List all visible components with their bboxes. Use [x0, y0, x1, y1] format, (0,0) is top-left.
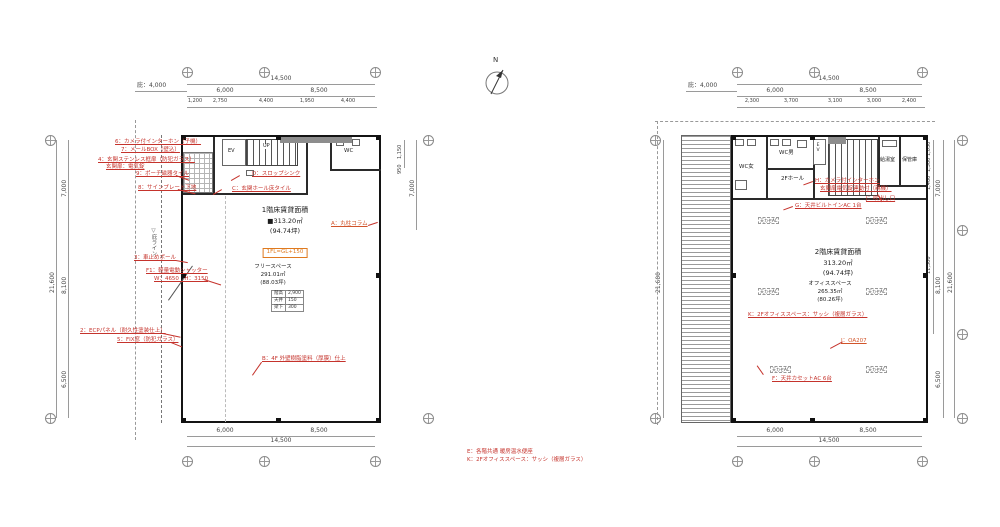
dim-total-top: 14,500	[271, 76, 292, 82]
dim-line	[187, 107, 377, 108]
dim-total-top: 14,500	[819, 76, 840, 82]
fixture	[747, 139, 756, 146]
grid-bubble	[45, 413, 56, 424]
free-space-name: フリースペース	[254, 265, 292, 271]
annotation: 4：玄関ステンレス框扉（防犯ガラス）	[98, 157, 195, 163]
annotation: 玄関扉：電気錠	[106, 164, 145, 170]
grid-bubble	[423, 413, 434, 424]
dim-seg: 6,000	[216, 428, 233, 434]
column	[731, 135, 736, 140]
dim-seg: 4,400	[259, 99, 273, 104]
grid-bubble	[650, 135, 661, 146]
dim-line	[187, 96, 375, 97]
column	[731, 273, 736, 278]
grid-bubble	[182, 456, 193, 467]
spec-cell: 300	[286, 304, 304, 311]
ac-unit-tag: 天カセAC	[758, 217, 779, 224]
column	[923, 135, 928, 140]
dim-line	[737, 446, 922, 447]
dim-seg: 2,750	[213, 99, 227, 104]
annotation: 3：車止めポール	[134, 255, 176, 261]
annotation: B：4F 外壁樹脂塗料（厚膜）仕上	[262, 356, 346, 362]
column	[376, 135, 381, 140]
dim-seg: 6,000	[766, 428, 783, 434]
dim-seg: 950	[398, 164, 403, 174]
room-label-ev: EV	[815, 143, 820, 153]
wall-line	[330, 169, 381, 171]
office-space-name: オフィススペース	[808, 282, 851, 288]
dim-line	[56, 140, 57, 418]
grid-bubble	[917, 456, 928, 467]
fixture	[882, 140, 897, 147]
dim-seg: 8,100	[936, 277, 942, 294]
dim-line	[686, 91, 737, 92]
annotation: A：丸柱コラム	[331, 221, 368, 227]
site-boundary	[657, 121, 658, 425]
grid-bubble	[45, 135, 56, 146]
dim-seg: 2,300	[745, 99, 759, 104]
annotation: 2：ECPパネル（耐久性塗装仕上）	[80, 328, 166, 334]
plan1-area: ■313.20㎡	[267, 218, 302, 225]
grid-bubble	[957, 225, 968, 236]
spec-cell: 150	[286, 297, 304, 304]
grid-bubble	[370, 67, 381, 78]
column	[810, 418, 815, 423]
grid-bubble	[259, 67, 270, 78]
grid-bubble	[423, 135, 434, 146]
ac-unit-tag: 天カセAC	[758, 288, 779, 295]
plan2-area: 313.20㎡	[823, 260, 852, 267]
plan1-tsubo: (94.74坪)	[270, 228, 300, 235]
annotation: F：天井カセットAC 6台	[772, 376, 832, 382]
spec-cell: 階高	[272, 291, 286, 298]
area-divider	[225, 196, 226, 422]
grid-bubble	[182, 67, 193, 78]
annotation: 5：FIX窓（防犯ガラス）	[117, 337, 178, 343]
plan1-title: 1階床賃貸面積	[262, 207, 308, 214]
dim-line	[933, 140, 934, 334]
fixture	[352, 139, 360, 146]
annotation: H：カメラ付インターホン	[815, 178, 880, 184]
dim-total-bottom: 14,500	[271, 438, 292, 444]
column	[276, 135, 281, 140]
annotation: 6：カメラ付インターホン（子機）	[115, 139, 201, 145]
spec-table: 階高2,900 天井150 梁下300	[271, 290, 304, 312]
column	[810, 135, 815, 140]
annotation: I：OA207	[841, 338, 867, 344]
dim-seg: 1,950	[300, 99, 314, 104]
dim-line	[737, 96, 922, 97]
column	[276, 418, 281, 423]
dim-line	[737, 84, 922, 85]
wall-poche	[280, 137, 352, 143]
dim-seg: 8,500	[310, 88, 327, 94]
column	[376, 418, 381, 423]
grid-bubble	[732, 67, 743, 78]
canopy-dim-label: 庇：4,000	[137, 83, 166, 89]
dim-line	[68, 140, 69, 418]
eave-line-label: ▽庇ライン	[150, 228, 156, 256]
spec-cell: 梁下	[272, 304, 286, 311]
grid-bubble	[370, 456, 381, 467]
dim-seg: 8,500	[859, 88, 876, 94]
ac-unit-tag: 天カセAC	[866, 288, 887, 295]
wall-line	[733, 198, 926, 200]
plan2-title: 2階床賃貸面積	[815, 249, 861, 256]
ac-unit-tag: 天カセAC	[866, 217, 887, 224]
dim-line	[943, 140, 944, 418]
dim-seg: 3,100	[828, 99, 842, 104]
plan2-tsubo: (94.74坪)	[823, 270, 853, 277]
dim-line	[187, 446, 375, 447]
fixture	[770, 139, 779, 146]
annotation: C：玄関ホール床タイル	[232, 186, 291, 192]
room-label-ev: EV	[228, 149, 235, 154]
room-label-wc-men: WC男	[779, 151, 794, 157]
dim-seg: 8,500	[859, 428, 876, 434]
wall-line	[899, 137, 901, 185]
fixture	[735, 139, 744, 146]
spec-cell: 2,900	[286, 291, 304, 298]
room-label-wc: WC	[344, 149, 353, 155]
annotation: 玄関扉電気錠連動付（親機）	[820, 186, 892, 192]
legend-note-e: E：各階共通 暖房温水便座	[467, 449, 533, 456]
grid-bubble	[957, 135, 968, 146]
site-boundary	[655, 121, 935, 122]
office-space-tsubo: (80.26坪)	[817, 298, 843, 304]
room-label-wc-women: WC女	[739, 165, 754, 171]
north-label: N	[493, 57, 498, 64]
annotation: W：4650 H：3150	[154, 276, 208, 282]
dim-line	[954, 140, 955, 418]
canopy-roof-hatch	[681, 135, 731, 423]
stair-up-label: UP	[263, 144, 270, 149]
dim-line	[737, 107, 925, 108]
floor-plan-sheet: N E：各階共通 暖房温水便座 K：2Fオフィススペース：サッシ（複層ガラス） …	[0, 0, 1000, 527]
column	[376, 273, 381, 278]
fixture	[782, 139, 791, 146]
fixture	[735, 180, 747, 190]
fixture	[797, 140, 807, 148]
grid-bubble	[259, 456, 270, 467]
annotation: K：2Fオフィススペース：サッシ（複層ガラス）	[748, 312, 867, 318]
grid-bubble	[650, 413, 661, 424]
wall-poche	[828, 137, 846, 144]
annotation: 8：サインプレート下地	[138, 185, 196, 191]
grid-bubble	[957, 329, 968, 340]
wall-line	[213, 137, 215, 193]
column	[731, 418, 736, 423]
annotation: F1：軽量電動シャッター	[146, 268, 208, 274]
annotation: G：天井ビルトインAC 1台	[795, 203, 862, 209]
column	[181, 418, 186, 423]
column	[923, 273, 928, 278]
north-arrow-icon	[483, 67, 511, 97]
dim-line	[416, 140, 417, 230]
ac-unit-tag: 天カセAC	[770, 366, 791, 373]
dim-seg: 2,400	[902, 99, 916, 104]
dim-seg: 6,500	[936, 371, 942, 388]
legend-note-k: K：2Fオフィススペース：サッシ（複層ガラス）	[467, 457, 586, 464]
grid-bubble	[732, 456, 743, 467]
office-space-area: 265.35㎡	[818, 290, 843, 296]
wall-line	[766, 168, 813, 170]
free-space-area: 291.01㎡	[261, 273, 286, 279]
annotation: 7：メールBOX（壁込）	[121, 147, 180, 153]
dim-line	[135, 91, 187, 92]
dim-line	[404, 140, 405, 168]
dim-seg: 6,000	[216, 88, 233, 94]
room-label-hall: 2Fホール	[781, 177, 804, 183]
spec-cell: 天井	[272, 297, 286, 304]
wall-line	[306, 137, 308, 195]
column	[923, 418, 928, 423]
dim-seg: 1,150	[398, 145, 403, 159]
stair-1f	[246, 139, 298, 166]
free-space-tsubo: (88.03坪)	[260, 281, 286, 287]
dim-seg: 3,700	[784, 99, 798, 104]
dim-seg: 1,200	[188, 99, 202, 104]
dim-line	[187, 84, 375, 85]
dim-seg: 4,400	[341, 99, 355, 104]
dim-seg: 8,500	[310, 428, 327, 434]
wall-line	[183, 193, 307, 195]
dim-seg: 6,000	[766, 88, 783, 94]
ac-unit-tag: 天カセAC	[866, 366, 887, 373]
grid-bubble	[917, 67, 928, 78]
canopy-dim-label: 庇：4,000	[688, 83, 717, 89]
room-label-kitchen: 給湯室	[880, 158, 895, 163]
room-label-storage: 保管庫	[902, 158, 917, 163]
grid-bubble	[809, 456, 820, 467]
annotation: D：スロップシンク	[252, 171, 300, 177]
dim-seg: 7,000	[936, 180, 942, 197]
dim-total-bottom: 14,500	[819, 438, 840, 444]
level-tag: 1FL=GL+150	[263, 248, 308, 258]
dim-line	[663, 140, 664, 418]
dim-seg: 3,000	[867, 99, 881, 104]
grid-bubble	[957, 413, 968, 424]
